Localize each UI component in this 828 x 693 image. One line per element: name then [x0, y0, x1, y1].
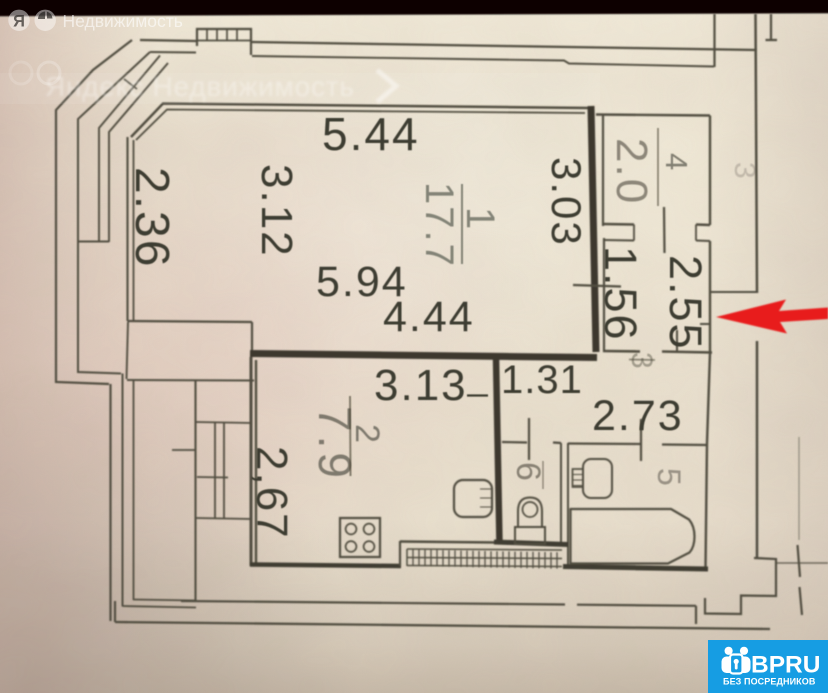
- svg-text:Я: Я: [13, 13, 25, 31]
- svg-text:Яндекс Недвижимость: Яндекс Недвижимость: [45, 71, 355, 102]
- svg-text:БЕЗ ПОСРЕДНИКОВ: БЕЗ ПОСРЕДНИКОВ: [723, 677, 816, 687]
- svg-text:Недвижимость: Недвижимость: [63, 11, 183, 31]
- svg-text:BPRU: BPRU: [751, 652, 820, 679]
